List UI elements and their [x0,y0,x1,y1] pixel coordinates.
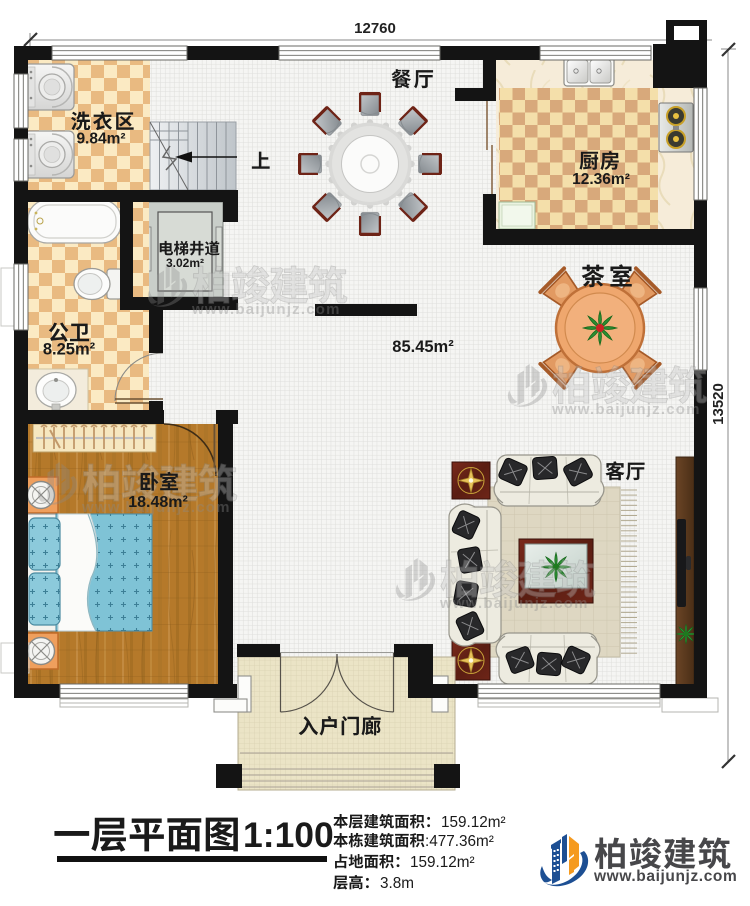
svg-text:159.12m²: 159.12m² [441,814,506,831]
svg-text:www.baijunjz.com: www.baijunjz.com [593,868,737,885]
svg-text:12.36m²: 12.36m² [572,171,630,188]
svg-text:3.8m: 3.8m [380,875,414,892]
svg-text::477.36m²: :477.36m² [425,833,494,850]
svg-text:9.84m²: 9.84m² [76,131,125,148]
svg-text:12760: 12760 [354,20,396,37]
svg-text:85.45m²: 85.45m² [392,338,454,356]
svg-text:18.48m²: 18.48m² [128,494,188,511]
svg-text:13520: 13520 [710,383,727,425]
svg-text:8.25m²: 8.25m² [43,341,96,359]
svg-text:3.02m²: 3.02m² [166,256,204,270]
svg-text:1:100: 1:100 [243,815,334,855]
svg-text:159.12m²: 159.12m² [410,854,475,871]
